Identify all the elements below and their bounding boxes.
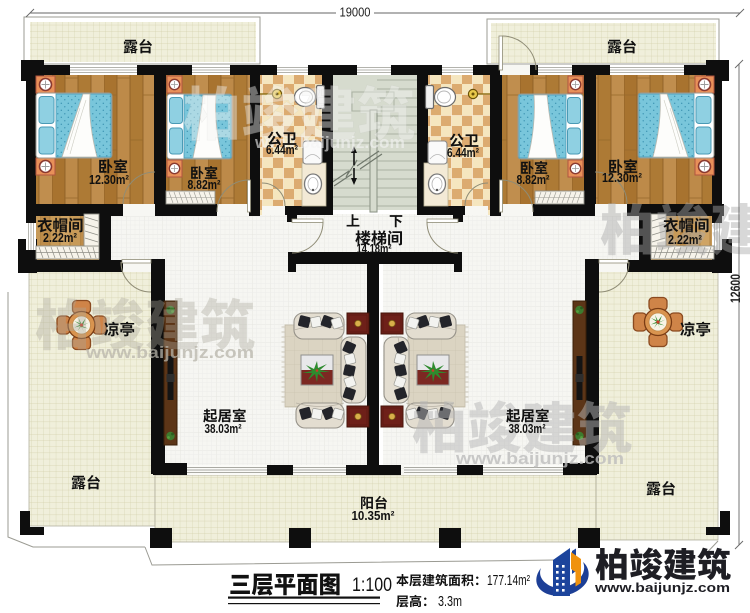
svg-text:12600: 12600 <box>727 274 743 303</box>
svg-text:1:100: 1:100 <box>352 574 392 596</box>
svg-text:6.44m²: 6.44m² <box>447 145 480 160</box>
svg-text:2.22m²: 2.22m² <box>668 232 703 247</box>
svg-text:www.baijunjz.com: www.baijunjz.com <box>85 343 254 362</box>
svg-text:3.3m: 3.3m <box>438 594 462 610</box>
svg-text:19000: 19000 <box>340 6 371 20</box>
svg-text:38.03m²: 38.03m² <box>509 421 547 436</box>
svg-text:12.30m²: 12.30m² <box>602 170 643 185</box>
svg-text:2.22m²: 2.22m² <box>43 230 78 245</box>
svg-text:14.18m²: 14.18m² <box>357 241 392 256</box>
svg-text:177.14m²: 177.14m² <box>487 573 530 589</box>
svg-text:10.35m²: 10.35m² <box>352 508 396 523</box>
svg-text:6.44m²: 6.44m² <box>266 142 299 157</box>
svg-text:www.baijunjz.com: www.baijunjz.com <box>594 581 730 595</box>
svg-text:8.82m²: 8.82m² <box>188 177 222 192</box>
svg-text:www.baijunjz.com: www.baijunjz.com <box>455 449 624 468</box>
svg-text:12.30m²: 12.30m² <box>89 172 130 187</box>
svg-text:38.03m²: 38.03m² <box>205 421 243 436</box>
svg-text:8.82m²: 8.82m² <box>517 172 551 187</box>
